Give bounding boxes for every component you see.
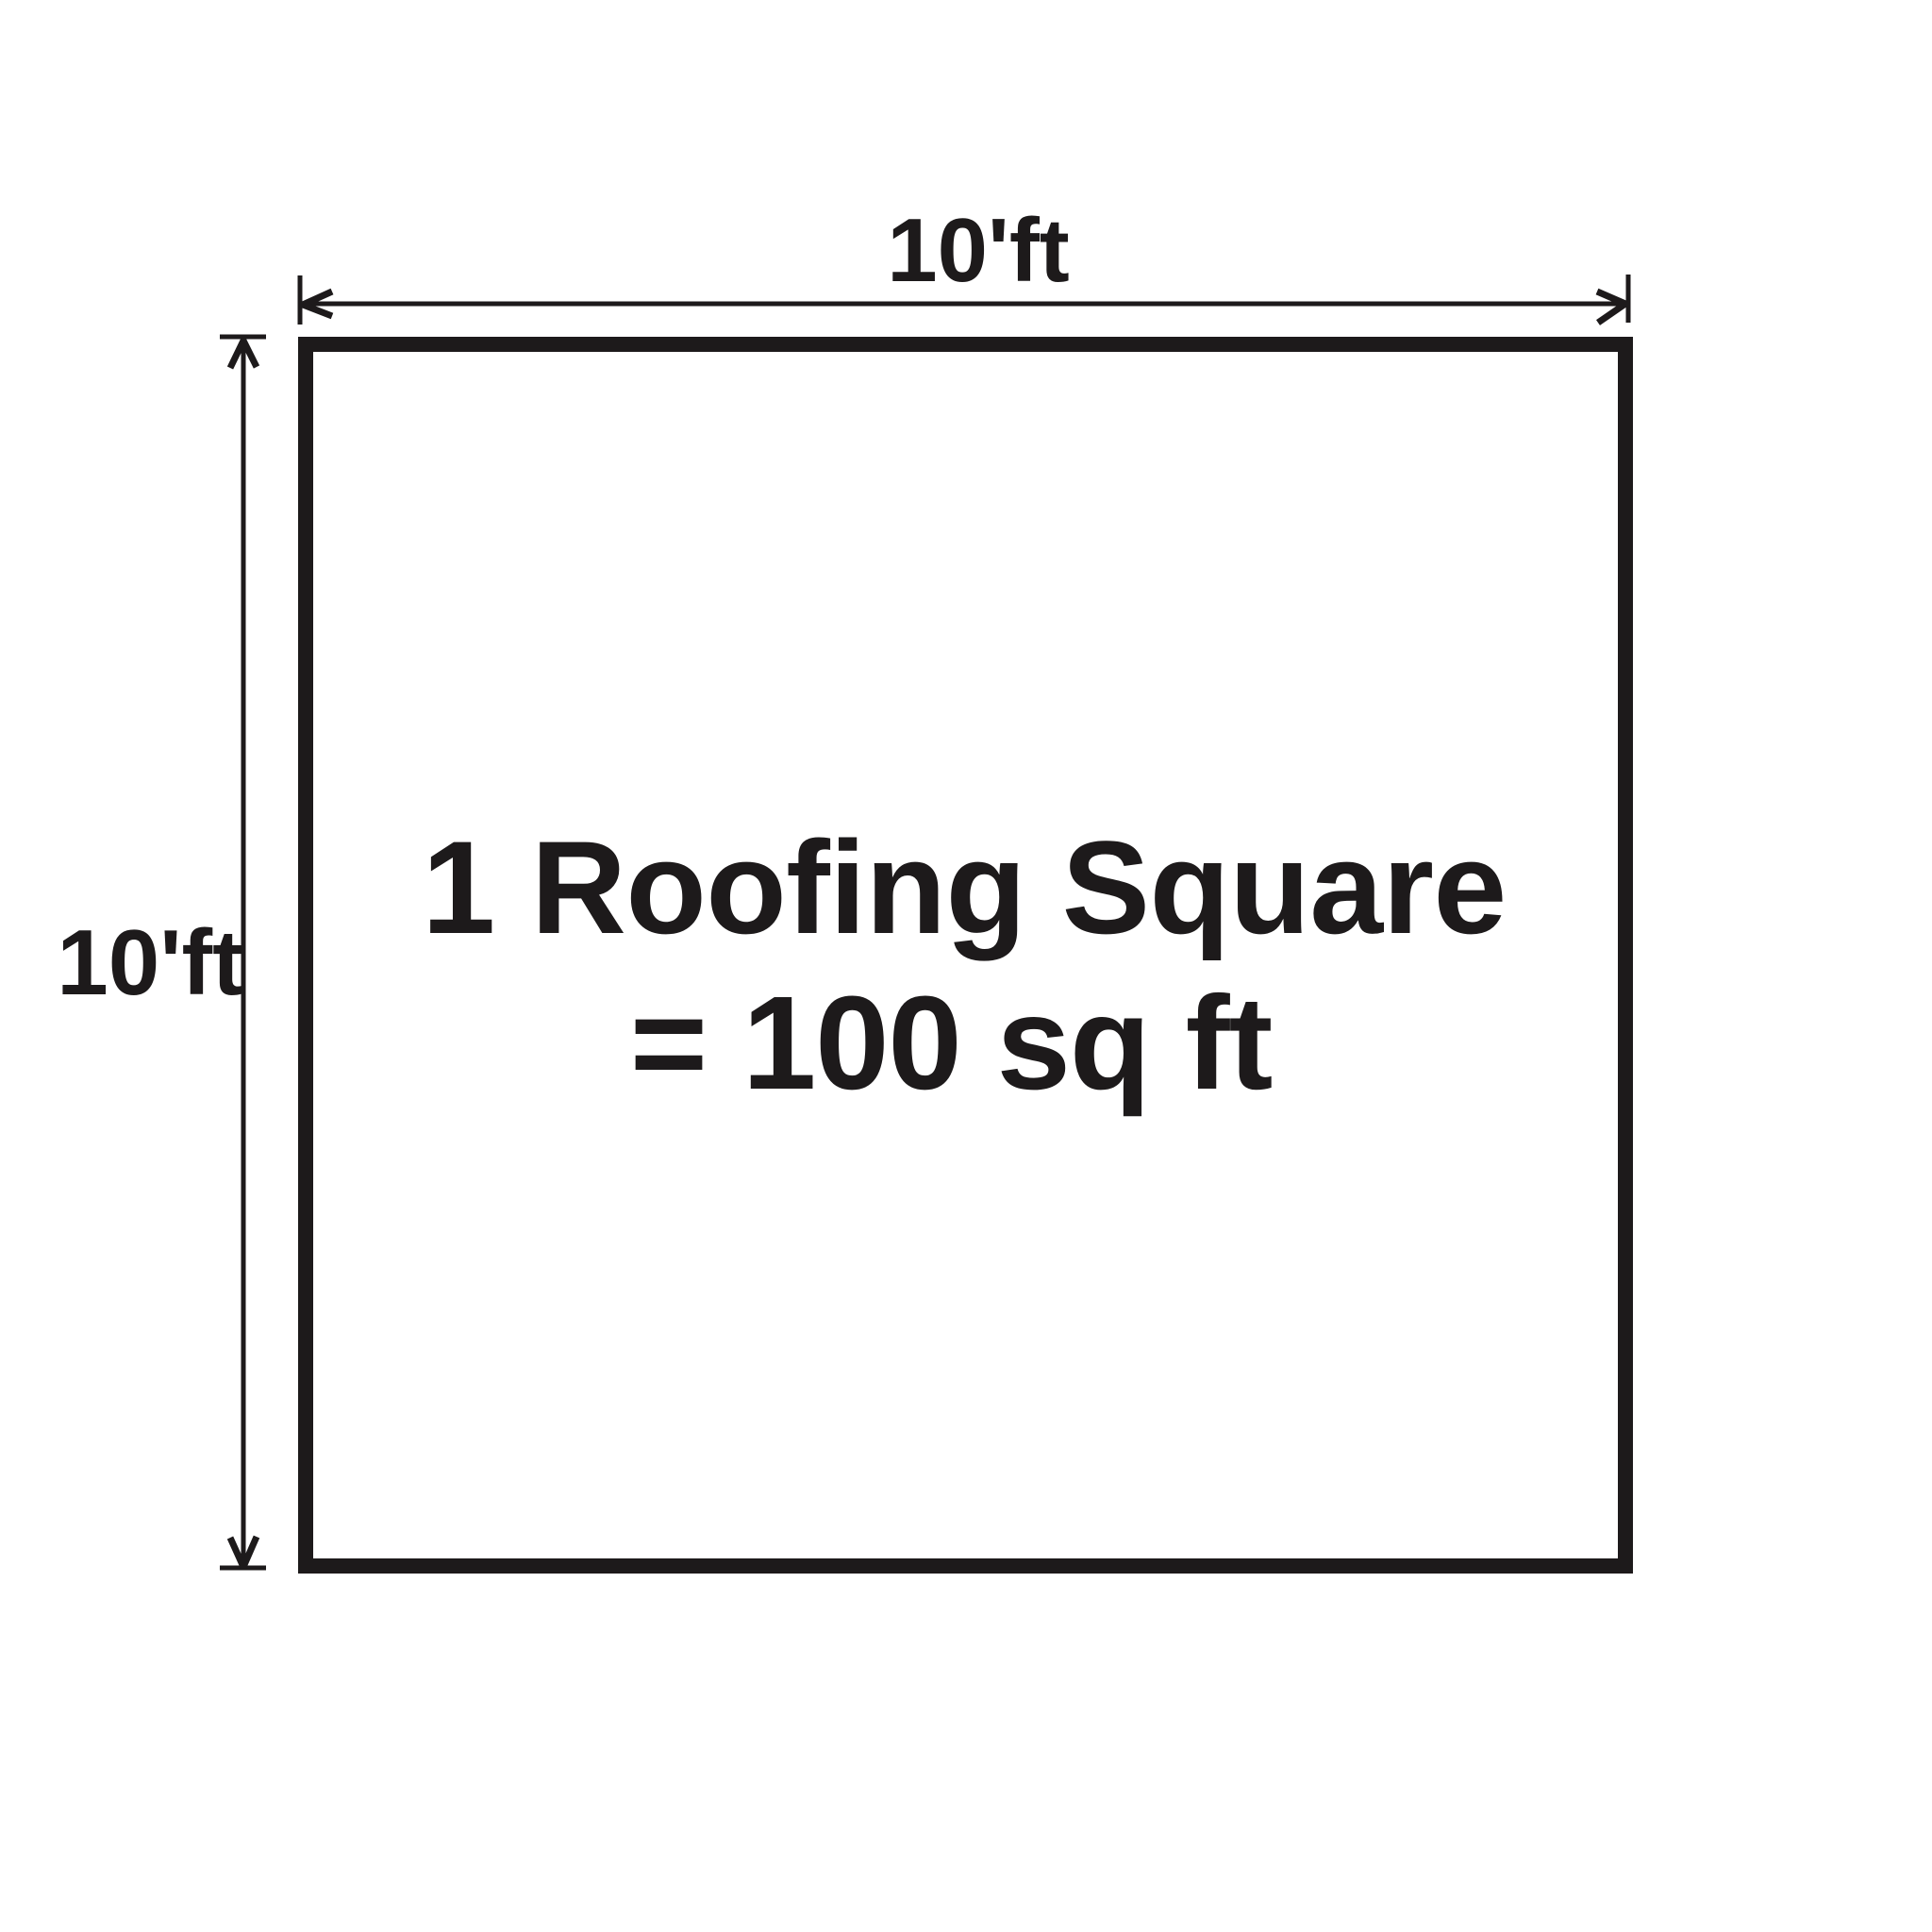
svg-text:10'ft: 10'ft <box>887 200 1070 301</box>
svg-text:1 Roofing Square: 1 Roofing Square <box>422 813 1506 961</box>
svg-text:= 100 sq ft: = 100 sq ft <box>630 968 1273 1117</box>
svg-text:10'ft: 10'ft <box>57 910 243 1014</box>
